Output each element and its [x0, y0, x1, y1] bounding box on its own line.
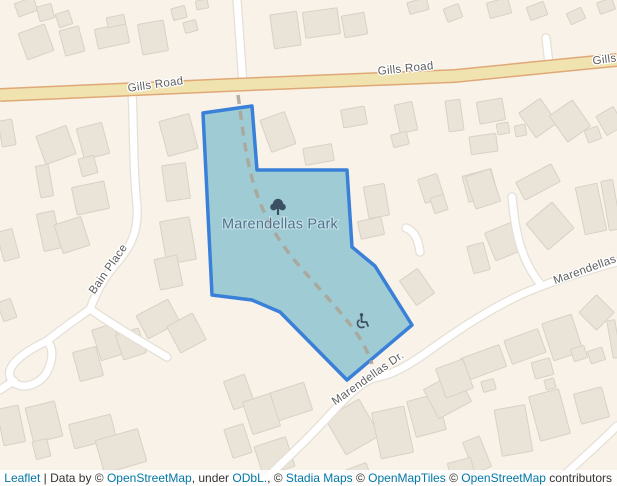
- attribution-text: contributors: [546, 471, 612, 485]
- odbl-link[interactable]: ODbL.: [232, 471, 267, 485]
- openstreetmap-contributors-link[interactable]: OpenStreetMap: [461, 471, 546, 485]
- building: [469, 133, 498, 155]
- building: [302, 8, 340, 39]
- park-label: Marendellas Park: [222, 217, 339, 233]
- building: [476, 98, 505, 124]
- openmaptiles-link[interactable]: OpenMapTiles: [368, 471, 446, 485]
- building: [514, 124, 527, 137]
- attribution-text: , ©: [267, 471, 286, 485]
- building: [162, 163, 191, 202]
- building: [341, 12, 367, 38]
- map-canvas[interactable]: Gills RoadGills RoadGillsBain PlaceMaren…: [0, 0, 617, 486]
- attribution-text: ©: [446, 471, 462, 485]
- building: [138, 20, 169, 55]
- building: [71, 181, 109, 215]
- openstreetmap-link[interactable]: OpenStreetMap: [107, 471, 192, 485]
- attribution-text: , under: [192, 471, 233, 485]
- attribution-text: ©: [353, 471, 369, 485]
- leaflet-link[interactable]: Leaflet: [4, 471, 40, 485]
- building: [36, 3, 54, 21]
- attribution-text: | Data by ©: [40, 471, 107, 485]
- building: [544, 378, 556, 390]
- map[interactable]: Gills RoadGills RoadGillsBain PlaceMaren…: [0, 0, 617, 486]
- attribution-bar: Leaflet | Data by © OpenStreetMap, under…: [0, 470, 617, 486]
- stadia-maps-link[interactable]: Stadia Maps: [286, 471, 353, 485]
- building: [341, 106, 368, 128]
- building: [195, 0, 208, 10]
- building: [496, 122, 510, 135]
- building: [270, 11, 301, 48]
